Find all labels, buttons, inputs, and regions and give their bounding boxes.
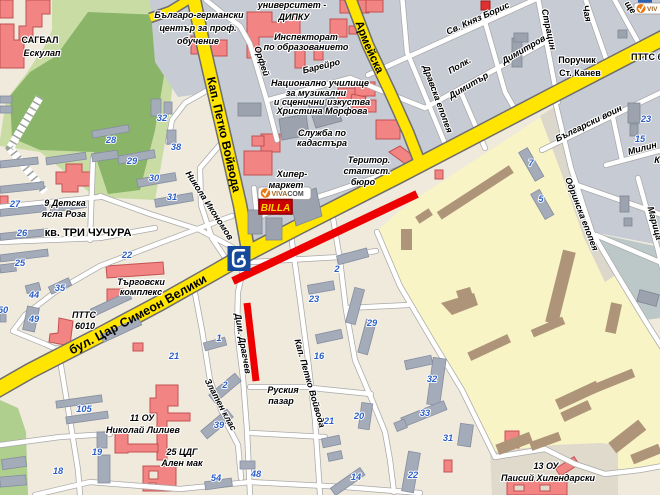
- svg-text:25: 25: [14, 258, 26, 268]
- svg-text:19: 19: [92, 447, 103, 457]
- svg-text:2: 2: [333, 264, 340, 274]
- svg-text:Ст. Канев: Ст. Канев: [559, 68, 601, 78]
- svg-text:Христина Морфова: Христина Морфова: [276, 106, 368, 116]
- svg-text:статист.: статист.: [344, 166, 391, 176]
- svg-text:27: 27: [9, 199, 21, 209]
- svg-text:29: 29: [366, 318, 378, 328]
- svg-text:Руския: Руския: [267, 385, 299, 395]
- svg-text:26: 26: [16, 228, 28, 238]
- svg-text:Николай Лилиев: Николай Лилиев: [106, 425, 180, 435]
- svg-text:VIVACOM: VIVACOM: [272, 191, 304, 198]
- svg-text:кадастъра: кадастъра: [297, 138, 347, 148]
- svg-text:Паисий Хилендарски: Паисий Хилендарски: [501, 473, 596, 483]
- svg-text:49: 49: [28, 314, 40, 324]
- svg-text:21: 21: [323, 416, 334, 426]
- svg-text:9 Детска: 9 Детска: [44, 198, 86, 208]
- svg-text:комплекс: комплекс: [120, 287, 162, 297]
- svg-text:22: 22: [407, 470, 419, 480]
- svg-text:Хипер-: Хипер-: [276, 169, 308, 179]
- svg-text:по образованието: по образованието: [264, 42, 349, 52]
- svg-text:Инспекторат: Инспекторат: [274, 32, 338, 42]
- svg-text:29: 29: [126, 156, 138, 166]
- svg-text:ясла Роза: ясла Роза: [41, 209, 86, 219]
- svg-text:28: 28: [105, 135, 117, 145]
- svg-text:105: 105: [76, 404, 92, 414]
- svg-text:20: 20: [353, 411, 365, 421]
- svg-text:31: 31: [443, 433, 453, 443]
- svg-text:6010: 6010: [75, 321, 95, 331]
- svg-text:Търговски: Търговски: [117, 277, 165, 287]
- svg-text:Територ.: Територ.: [348, 155, 391, 165]
- svg-text:16: 16: [314, 351, 325, 361]
- svg-text:13 ОУ: 13 ОУ: [533, 461, 559, 471]
- svg-text:21: 21: [168, 351, 179, 361]
- svg-text:31: 31: [167, 192, 177, 202]
- svg-text:Служба по: Служба по: [298, 128, 346, 138]
- svg-text:Българо-германски: Българо-германски: [154, 10, 244, 20]
- svg-text:54: 54: [211, 473, 222, 483]
- svg-text:48: 48: [250, 469, 262, 479]
- svg-text:център за проф.: център за проф.: [159, 23, 236, 33]
- svg-text:30: 30: [149, 173, 160, 183]
- svg-text:5: 5: [538, 194, 544, 204]
- svg-text:38: 38: [171, 142, 182, 152]
- svg-text:23: 23: [308, 294, 320, 304]
- svg-text:маркет: маркет: [269, 180, 304, 190]
- svg-text:15: 15: [635, 134, 646, 144]
- svg-text:пазар: пазар: [268, 396, 294, 406]
- svg-text:2: 2: [221, 380, 228, 390]
- svg-text:кв. ТРИ ЧУЧУРА: кв. ТРИ ЧУЧУРА: [45, 227, 132, 239]
- svg-text:44: 44: [28, 290, 40, 300]
- svg-text:бюро: бюро: [351, 177, 376, 187]
- svg-text:32: 32: [427, 374, 438, 384]
- svg-text:18: 18: [53, 466, 64, 476]
- svg-text:33: 33: [420, 408, 431, 418]
- svg-text:Ескулап: Ескулап: [24, 48, 61, 58]
- svg-text:обучение: обучение: [177, 36, 219, 46]
- svg-text:Поручик: Поручик: [558, 55, 596, 65]
- svg-text:ПТТС: ПТТС: [72, 310, 96, 320]
- svg-text:14: 14: [351, 472, 362, 482]
- svg-text:23: 23: [640, 114, 652, 124]
- svg-text:50: 50: [0, 305, 9, 315]
- svg-text:Ален мак: Ален мак: [160, 458, 203, 468]
- svg-text:1: 1: [216, 333, 221, 343]
- svg-text:ДИПКУ: ДИПКУ: [277, 12, 310, 22]
- svg-text:BILLA: BILLA: [261, 203, 290, 214]
- svg-text:11 ОУ: 11 ОУ: [130, 413, 155, 423]
- svg-text:VIV: VIV: [647, 6, 658, 13]
- svg-text:32: 32: [157, 113, 168, 123]
- svg-text:САГБАЛ: САГБАЛ: [22, 35, 59, 45]
- svg-text:ПТТС б: ПТТС б: [631, 52, 660, 62]
- svg-text:университет -: университет -: [257, 0, 327, 10]
- svg-text:35: 35: [55, 283, 66, 293]
- svg-text:22: 22: [121, 250, 133, 260]
- svg-text:Национално училище: Национално училище: [271, 78, 369, 88]
- svg-text:39: 39: [214, 420, 225, 430]
- svg-text:К: К: [654, 155, 660, 165]
- svg-text:7: 7: [528, 158, 534, 168]
- svg-text:25 ЦДГ: 25 ЦДГ: [165, 447, 198, 457]
